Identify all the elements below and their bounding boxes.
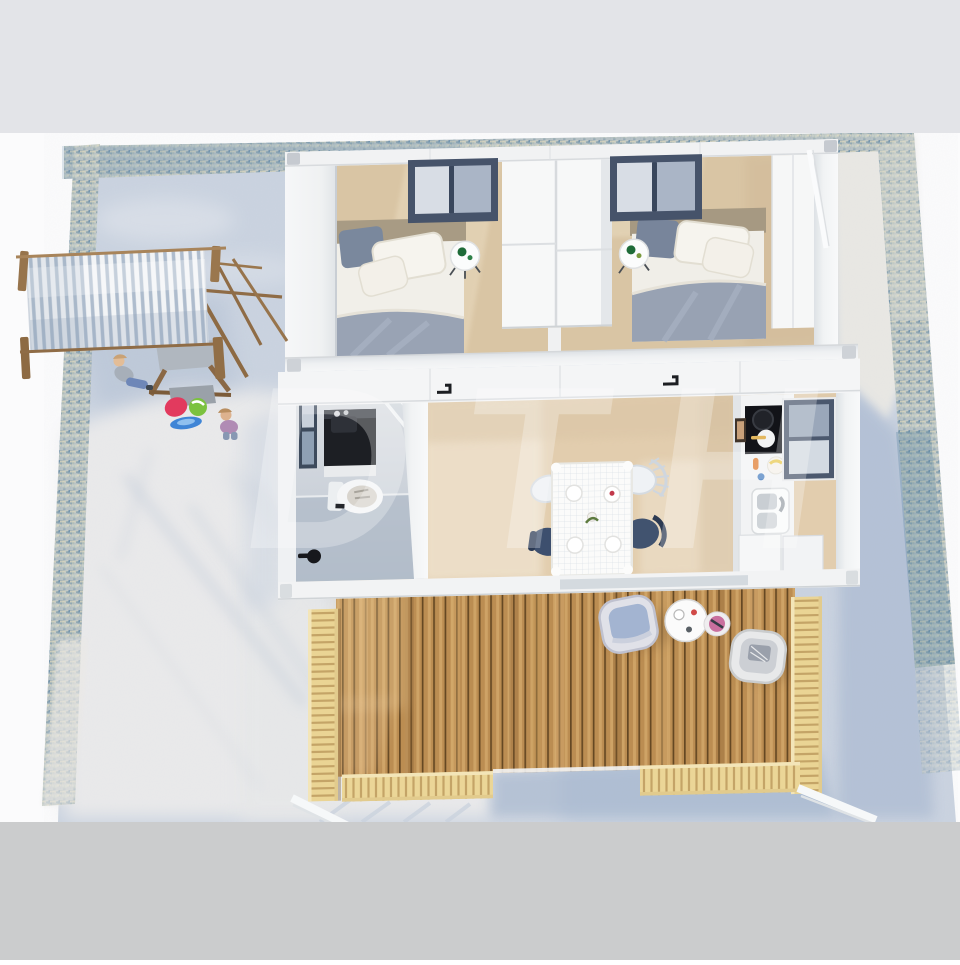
- svg-text:DTH: DTH: [228, 339, 891, 598]
